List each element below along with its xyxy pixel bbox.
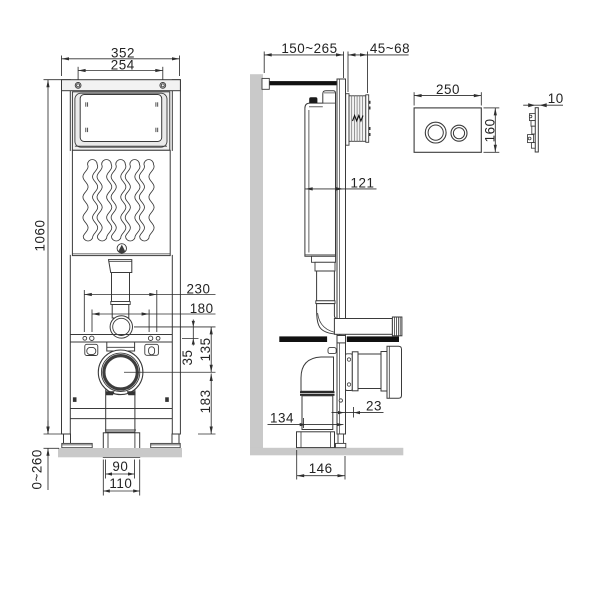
svg-text:183: 183 <box>198 389 213 413</box>
svg-text:23: 23 <box>366 398 382 413</box>
svg-text:160: 160 <box>483 118 498 142</box>
svg-text:135: 135 <box>198 337 213 361</box>
svg-text:250: 250 <box>436 82 460 97</box>
svg-text:10: 10 <box>548 91 564 106</box>
svg-text:0~260: 0~260 <box>29 449 44 489</box>
svg-text:146: 146 <box>309 461 333 476</box>
svg-text:1060: 1060 <box>33 220 48 252</box>
svg-text:134: 134 <box>270 410 294 425</box>
svg-text:45~68: 45~68 <box>370 41 410 56</box>
svg-text:121: 121 <box>351 175 375 190</box>
svg-text:150~265: 150~265 <box>281 41 337 56</box>
svg-text:35: 35 <box>180 350 195 366</box>
svg-text:254: 254 <box>111 57 135 72</box>
svg-text:90: 90 <box>112 459 128 474</box>
svg-text:110: 110 <box>109 476 132 491</box>
svg-text:180: 180 <box>190 301 214 316</box>
svg-text:230: 230 <box>187 281 211 296</box>
